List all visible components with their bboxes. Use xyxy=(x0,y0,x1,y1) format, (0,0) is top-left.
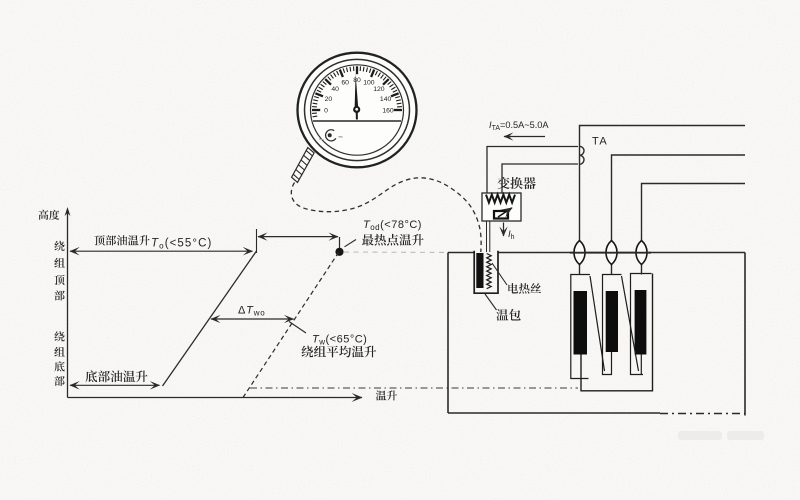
svg-text:TA: TA xyxy=(592,136,608,148)
svg-text:80: 80 xyxy=(353,77,361,84)
svg-text:120: 120 xyxy=(373,86,385,93)
svg-text:140: 140 xyxy=(380,96,392,103)
svg-text:160: 160 xyxy=(382,107,394,114)
svg-text:60: 60 xyxy=(341,80,349,87)
svg-text:20: 20 xyxy=(325,96,333,103)
svg-text:0: 0 xyxy=(324,107,328,114)
svg-text:40: 40 xyxy=(331,86,339,93)
